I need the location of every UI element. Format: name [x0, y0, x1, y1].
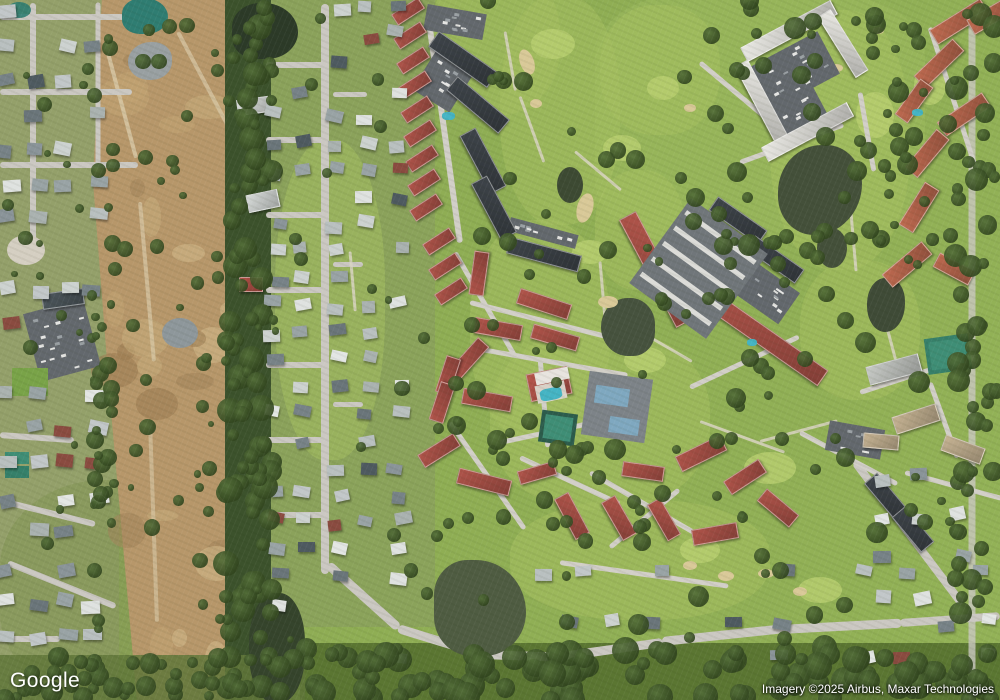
tree — [229, 183, 240, 194]
tree — [356, 442, 366, 452]
house — [937, 620, 954, 632]
tree — [844, 232, 858, 246]
dirt-patch — [172, 629, 187, 647]
tree — [967, 466, 977, 476]
tree — [256, 436, 273, 453]
sand-bunker — [530, 99, 542, 108]
tree — [807, 30, 816, 39]
parked-car — [74, 365, 79, 369]
dirt-patch — [106, 291, 125, 327]
house — [386, 24, 403, 38]
house — [390, 1, 405, 12]
tree — [755, 57, 772, 74]
tree — [983, 462, 1000, 482]
tree — [246, 505, 260, 519]
house — [362, 381, 379, 392]
parked-car — [783, 115, 789, 120]
tree — [949, 602, 971, 624]
tennis-court — [542, 414, 573, 442]
tree — [235, 279, 248, 292]
tree — [539, 660, 566, 687]
building-tan — [940, 434, 985, 464]
tree — [37, 97, 52, 112]
house — [332, 379, 350, 393]
tree — [818, 286, 834, 302]
tree — [421, 587, 434, 600]
tree — [92, 332, 100, 340]
tree — [201, 353, 212, 364]
tree — [711, 206, 727, 222]
tree — [195, 483, 204, 492]
tree — [908, 371, 930, 393]
tree — [94, 625, 102, 633]
tree — [151, 54, 166, 69]
house — [80, 600, 100, 614]
house — [2, 180, 20, 194]
tree — [536, 491, 553, 508]
tree — [56, 310, 66, 320]
tree — [502, 645, 527, 670]
tree — [727, 162, 747, 182]
parked-car — [33, 319, 38, 323]
tree — [94, 451, 103, 460]
tree — [499, 233, 517, 251]
tree — [387, 528, 401, 542]
tree — [92, 426, 101, 435]
tree — [129, 444, 143, 458]
parked-car — [445, 74, 451, 79]
tree — [63, 161, 70, 168]
tree — [218, 477, 243, 502]
house — [327, 464, 344, 475]
tree — [138, 150, 153, 165]
parked-car — [798, 55, 804, 60]
tree — [677, 70, 692, 85]
tree — [764, 391, 773, 400]
tree — [919, 196, 930, 207]
tree — [633, 520, 647, 534]
house — [292, 381, 308, 393]
tree — [962, 9, 973, 20]
tree — [562, 571, 571, 580]
house — [392, 162, 407, 173]
house — [28, 387, 46, 400]
parked-car — [437, 60, 443, 65]
house — [2, 316, 21, 330]
tree — [951, 192, 965, 206]
house — [392, 492, 406, 505]
house — [62, 282, 79, 293]
house — [912, 590, 931, 606]
tree — [394, 381, 409, 396]
tree — [635, 505, 645, 515]
parked-car — [87, 359, 92, 363]
building-tan — [891, 403, 940, 434]
house — [24, 110, 43, 123]
house — [331, 56, 348, 69]
parked-car — [782, 70, 788, 75]
house — [325, 222, 343, 235]
tree — [181, 110, 193, 122]
house — [0, 630, 14, 642]
parked-car — [443, 21, 448, 24]
tree — [741, 349, 759, 367]
tree — [418, 332, 430, 344]
tree — [140, 653, 160, 673]
tree — [963, 65, 979, 81]
parked-car — [56, 321, 61, 325]
parked-car — [794, 45, 800, 50]
tree — [978, 258, 989, 269]
tree — [227, 429, 239, 441]
house — [358, 0, 372, 11]
parked-car — [796, 116, 802, 121]
tree — [770, 256, 786, 272]
tree — [230, 680, 248, 698]
tree — [237, 461, 250, 474]
tree — [534, 249, 543, 258]
tree — [905, 127, 923, 145]
tree — [726, 388, 746, 408]
parked-car — [61, 354, 66, 358]
tree — [890, 221, 898, 229]
tree — [187, 657, 198, 668]
house — [575, 565, 592, 576]
parked-car — [451, 16, 456, 19]
road — [30, 3, 36, 245]
tree — [107, 300, 115, 308]
tree — [836, 448, 855, 467]
house — [362, 327, 378, 340]
parked-car — [779, 89, 785, 94]
house — [535, 569, 552, 581]
parked-car — [57, 335, 62, 339]
house — [55, 453, 74, 468]
tree — [75, 204, 84, 213]
tree — [725, 432, 738, 445]
tree — [503, 172, 516, 185]
pond — [557, 167, 583, 203]
tree — [978, 644, 997, 663]
tree — [74, 655, 88, 669]
house — [655, 565, 669, 576]
tree — [443, 518, 454, 529]
tree — [245, 148, 267, 170]
satellite-map-canvas[interactable]: Google Imagery ©2025 Airbus, Maxar Techn… — [0, 0, 1000, 700]
tree — [109, 479, 119, 489]
tree — [391, 688, 409, 700]
tree — [496, 451, 511, 466]
parked-car — [462, 29, 467, 32]
tree — [546, 517, 560, 531]
sand-bunker — [684, 104, 696, 112]
tree — [256, 538, 270, 552]
tree — [883, 109, 892, 118]
tree — [978, 215, 997, 234]
house — [33, 286, 49, 299]
tree — [866, 522, 888, 544]
house — [362, 301, 375, 313]
tree — [126, 319, 139, 332]
tree — [243, 62, 267, 86]
house — [0, 385, 12, 397]
tree — [806, 606, 824, 624]
tree — [911, 35, 926, 50]
parked-car — [532, 230, 537, 234]
tree — [433, 423, 444, 434]
tree — [628, 614, 648, 634]
tree — [117, 241, 133, 257]
tree — [686, 188, 705, 207]
tree — [728, 645, 744, 661]
house — [604, 613, 620, 627]
tree — [804, 13, 822, 31]
tree — [980, 419, 993, 432]
house — [392, 405, 410, 417]
house — [84, 40, 101, 53]
tree — [140, 374, 152, 386]
golf-fairway — [600, 5, 720, 135]
tree — [989, 171, 1000, 182]
tree — [252, 472, 266, 486]
tree — [496, 678, 515, 697]
building-tan — [862, 432, 899, 450]
condo-red-roof — [434, 277, 468, 305]
tree — [255, 324, 262, 331]
tree — [150, 239, 164, 253]
road — [266, 287, 326, 293]
tree — [892, 77, 902, 87]
tree — [633, 533, 651, 551]
dirt-patch — [137, 355, 162, 377]
parked-car — [772, 303, 778, 308]
dirt-patch — [136, 388, 178, 419]
tree — [104, 391, 119, 406]
trailer-row — [673, 225, 746, 280]
tree — [368, 655, 386, 673]
condo-orange-roof — [882, 241, 933, 287]
tree — [464, 317, 480, 333]
tree — [638, 370, 646, 378]
tree — [904, 255, 913, 264]
tree — [795, 653, 808, 666]
tree — [322, 168, 332, 178]
tree — [707, 105, 724, 122]
tree — [227, 52, 239, 64]
tree — [213, 551, 238, 576]
tree — [139, 419, 155, 435]
parked-car — [791, 52, 797, 57]
house — [357, 408, 372, 420]
tree — [143, 24, 154, 35]
parked-car — [453, 71, 459, 76]
tree — [950, 524, 966, 540]
house — [272, 276, 289, 286]
parked-car — [520, 224, 525, 228]
tree — [452, 682, 480, 700]
tree — [953, 286, 970, 303]
tree — [106, 159, 120, 173]
parked-car — [525, 229, 530, 233]
swimming-pool — [747, 339, 757, 346]
sand-bunker — [793, 587, 807, 596]
tree — [917, 514, 933, 530]
tree — [767, 235, 781, 249]
tree — [851, 16, 861, 26]
tree — [578, 533, 593, 548]
tree — [215, 614, 225, 624]
tree — [654, 485, 671, 502]
tree — [948, 143, 965, 160]
parked-car — [455, 24, 460, 27]
tree — [937, 497, 946, 506]
tree — [830, 433, 841, 444]
tree — [891, 45, 899, 53]
tree — [256, 0, 272, 16]
parked-car — [775, 81, 781, 86]
parked-car — [773, 295, 779, 300]
tennis-court — [5, 466, 29, 478]
tree — [712, 491, 722, 501]
house — [291, 325, 307, 337]
parked-car — [453, 28, 458, 31]
road — [96, 3, 101, 168]
tree — [803, 103, 821, 121]
tree — [989, 383, 1000, 398]
house — [333, 570, 349, 582]
house — [295, 133, 312, 147]
tree — [913, 260, 922, 269]
tree — [194, 470, 201, 477]
tree — [107, 518, 116, 527]
tree — [244, 654, 256, 666]
tree — [234, 406, 250, 422]
house — [330, 271, 347, 282]
tree — [811, 230, 825, 244]
house — [30, 454, 48, 469]
tree — [294, 252, 308, 266]
house — [294, 271, 311, 285]
tree — [524, 269, 535, 280]
house — [296, 513, 310, 523]
house — [361, 462, 378, 475]
house — [0, 144, 12, 159]
swimming-pool — [442, 112, 455, 120]
tree — [521, 413, 538, 430]
tree — [838, 191, 850, 203]
tree — [431, 530, 443, 542]
tree — [721, 229, 732, 240]
tree — [157, 177, 165, 185]
golf-green — [531, 29, 575, 59]
tree — [693, 683, 719, 700]
tree — [926, 233, 938, 245]
tree — [884, 189, 894, 199]
google-watermark[interactable]: Google — [10, 669, 80, 693]
house — [58, 629, 77, 641]
tree — [911, 473, 919, 481]
house — [269, 542, 286, 556]
tree — [950, 76, 959, 85]
tree — [170, 165, 180, 175]
imagery-attribution: Imagery ©2025 Airbus, Maxar Technologies — [762, 682, 994, 696]
tree — [243, 21, 257, 35]
tree — [243, 48, 258, 63]
tree — [730, 684, 750, 700]
parked-car — [40, 336, 45, 340]
tree — [784, 17, 805, 38]
tree — [684, 632, 695, 643]
road — [333, 402, 363, 407]
tree — [202, 461, 217, 476]
swimming-pool — [912, 109, 923, 116]
tree — [889, 123, 903, 137]
tree — [128, 484, 134, 490]
sand-bunker — [598, 296, 618, 308]
house — [333, 3, 350, 16]
house — [29, 523, 49, 537]
tree — [18, 231, 33, 246]
tree — [234, 237, 257, 260]
tree — [372, 73, 385, 86]
house — [327, 519, 342, 531]
tree — [847, 161, 867, 181]
tree — [772, 562, 790, 580]
house — [90, 107, 106, 118]
tree — [121, 682, 134, 695]
tree — [962, 156, 975, 169]
tree — [144, 519, 160, 535]
tree — [561, 466, 571, 476]
house — [56, 591, 74, 607]
tree — [253, 630, 267, 644]
tree — [655, 257, 664, 266]
tree — [977, 129, 990, 142]
tree — [925, 661, 946, 682]
tree — [681, 309, 690, 318]
tree — [198, 599, 208, 609]
tree — [219, 335, 235, 351]
house — [294, 163, 310, 176]
tree — [816, 127, 834, 145]
tree — [106, 143, 120, 157]
tree — [196, 400, 209, 413]
curving-road — [780, 619, 902, 634]
tree — [810, 464, 821, 475]
house — [358, 214, 376, 228]
house — [388, 140, 404, 153]
tree — [36, 272, 43, 279]
tree — [626, 150, 645, 169]
parked-car — [79, 342, 84, 346]
tree — [919, 88, 927, 96]
tree — [71, 441, 78, 448]
tree — [219, 311, 241, 333]
tree — [738, 234, 760, 256]
tree — [775, 643, 797, 665]
dirt-patch — [172, 244, 205, 262]
house — [355, 191, 372, 203]
tree — [468, 651, 495, 678]
tree — [192, 553, 207, 568]
tree — [91, 313, 99, 321]
house — [874, 474, 891, 488]
parked-car — [476, 17, 481, 20]
tree — [612, 637, 639, 664]
tree — [367, 284, 377, 294]
tree — [675, 172, 687, 184]
tree — [261, 579, 282, 600]
